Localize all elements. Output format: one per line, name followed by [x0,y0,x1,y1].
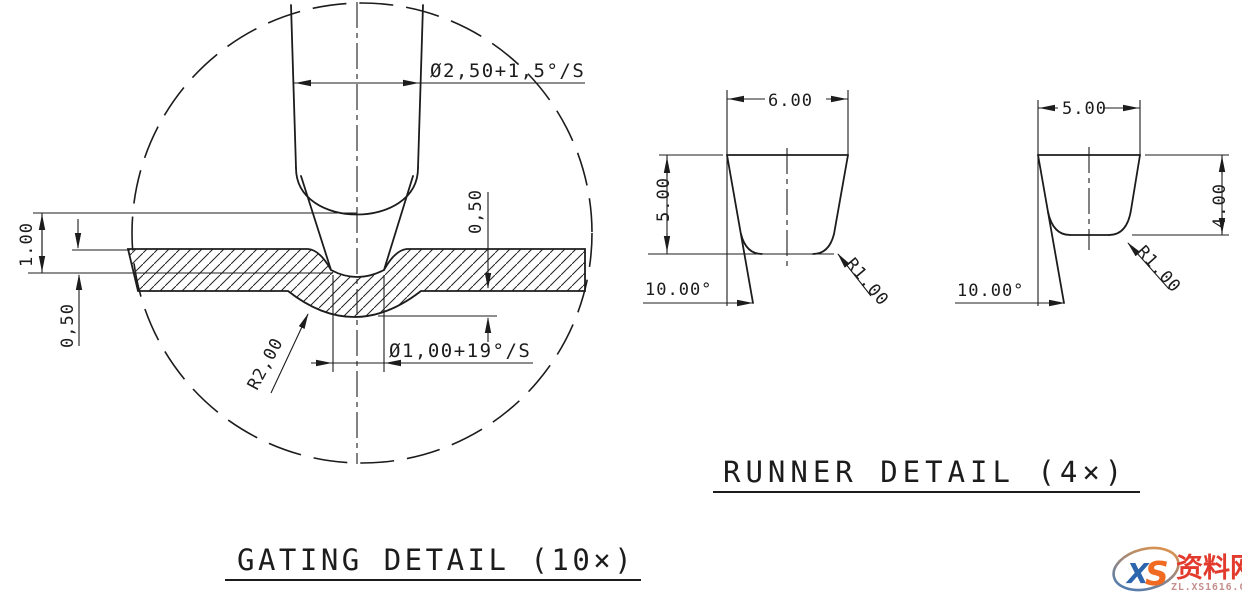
runner-left-dim-depth: 5.00 [654,155,723,254]
runner-right-width-text: 5.00 [1062,99,1107,119]
runner-right-radius-text: R1.00 [1132,242,1184,297]
gating-detail-title: GATING DETAIL (10×) [237,543,635,577]
dim-depth-right-text: 0,50 [466,189,486,234]
runner-left-radius-text: R1.00 [841,254,892,310]
runner-right-dim-depth: 4.00 [1132,155,1230,235]
cad-drawing-canvas: Ø2,50+1,5°/S 1.00 0,50 0,50 [0,0,1242,596]
dim-top-diameter: Ø2,50+1,5°/S [294,60,585,83]
runner-right-draft-angle: 10.00° [955,281,1064,303]
runner-detail-title: RUNNER DETAIL (4×) [723,455,1127,489]
watermark-logo-s: S [1145,554,1169,593]
dim-land-left: 0,50 [58,219,79,348]
dim-top-diameter-text: Ø2,50+1,5°/S [430,60,585,82]
runner-left-radius-leader: R1.00 [838,254,893,310]
runner-right-radius-leader: R1.00 [1128,242,1185,297]
runner-left-section: 6.00 5.00 10.00° R1.00 [643,90,893,310]
watermark: X S 资料网 ZL.XS1616.COM [1109,542,1242,596]
gating-detail-view: Ø2,50+1,5°/S 1.00 0,50 0,50 [17,2,641,580]
runner-left-draft-angle: 10.00° [643,280,752,303]
watermark-site-name: 资料网 [1176,553,1242,584]
runner-left-outline [648,90,848,306]
watermark-site-url: ZL.XS1616.COM [1171,582,1242,593]
dim-land-left-text: 0,50 [58,303,78,348]
runner-left-dim-width: 6.00 [727,91,848,111]
runner-right-dim-width: 5.00 [1038,99,1140,119]
runner-left-depth-text: 5.00 [654,177,674,222]
dim-wall-thickness-text: 1.00 [17,222,37,267]
runner-left-angle-text: 10.00° [645,280,712,300]
runner-right-section: 5.00 4.00 10.00° R1.00 RUNNER DETAIL (4×… [713,99,1230,492]
dim-gate-diameter-text: Ø1,00+19°/S [389,340,531,362]
dim-radius-leader: R2,00 [244,314,308,393]
runner-left-width-text: 6.00 [768,91,813,111]
runner-right-angle-text: 10.00° [957,281,1024,301]
runner-right-depth-text: 4.00 [1210,183,1230,228]
dim-radius-text: R2,00 [244,334,288,393]
